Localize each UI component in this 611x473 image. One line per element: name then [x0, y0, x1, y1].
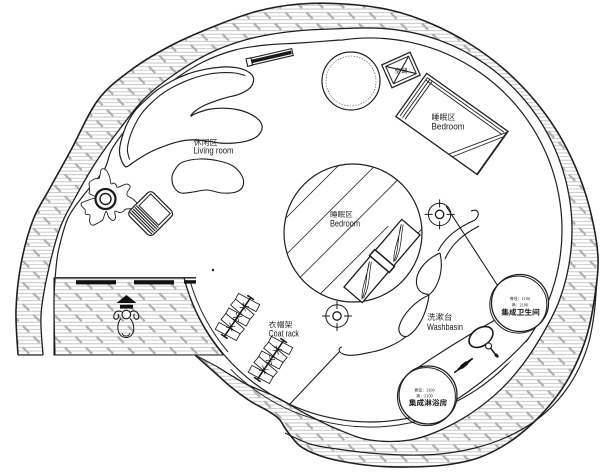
svg-text:Bedroom: Bedroom [330, 219, 360, 229]
svg-text:Washbasin: Washbasin [427, 322, 463, 333]
svg-text:Living room: Living room [194, 146, 234, 157]
svg-text:Bedroom: Bedroom [432, 122, 465, 133]
svg-text:Coat rack: Coat rack [269, 329, 300, 339]
